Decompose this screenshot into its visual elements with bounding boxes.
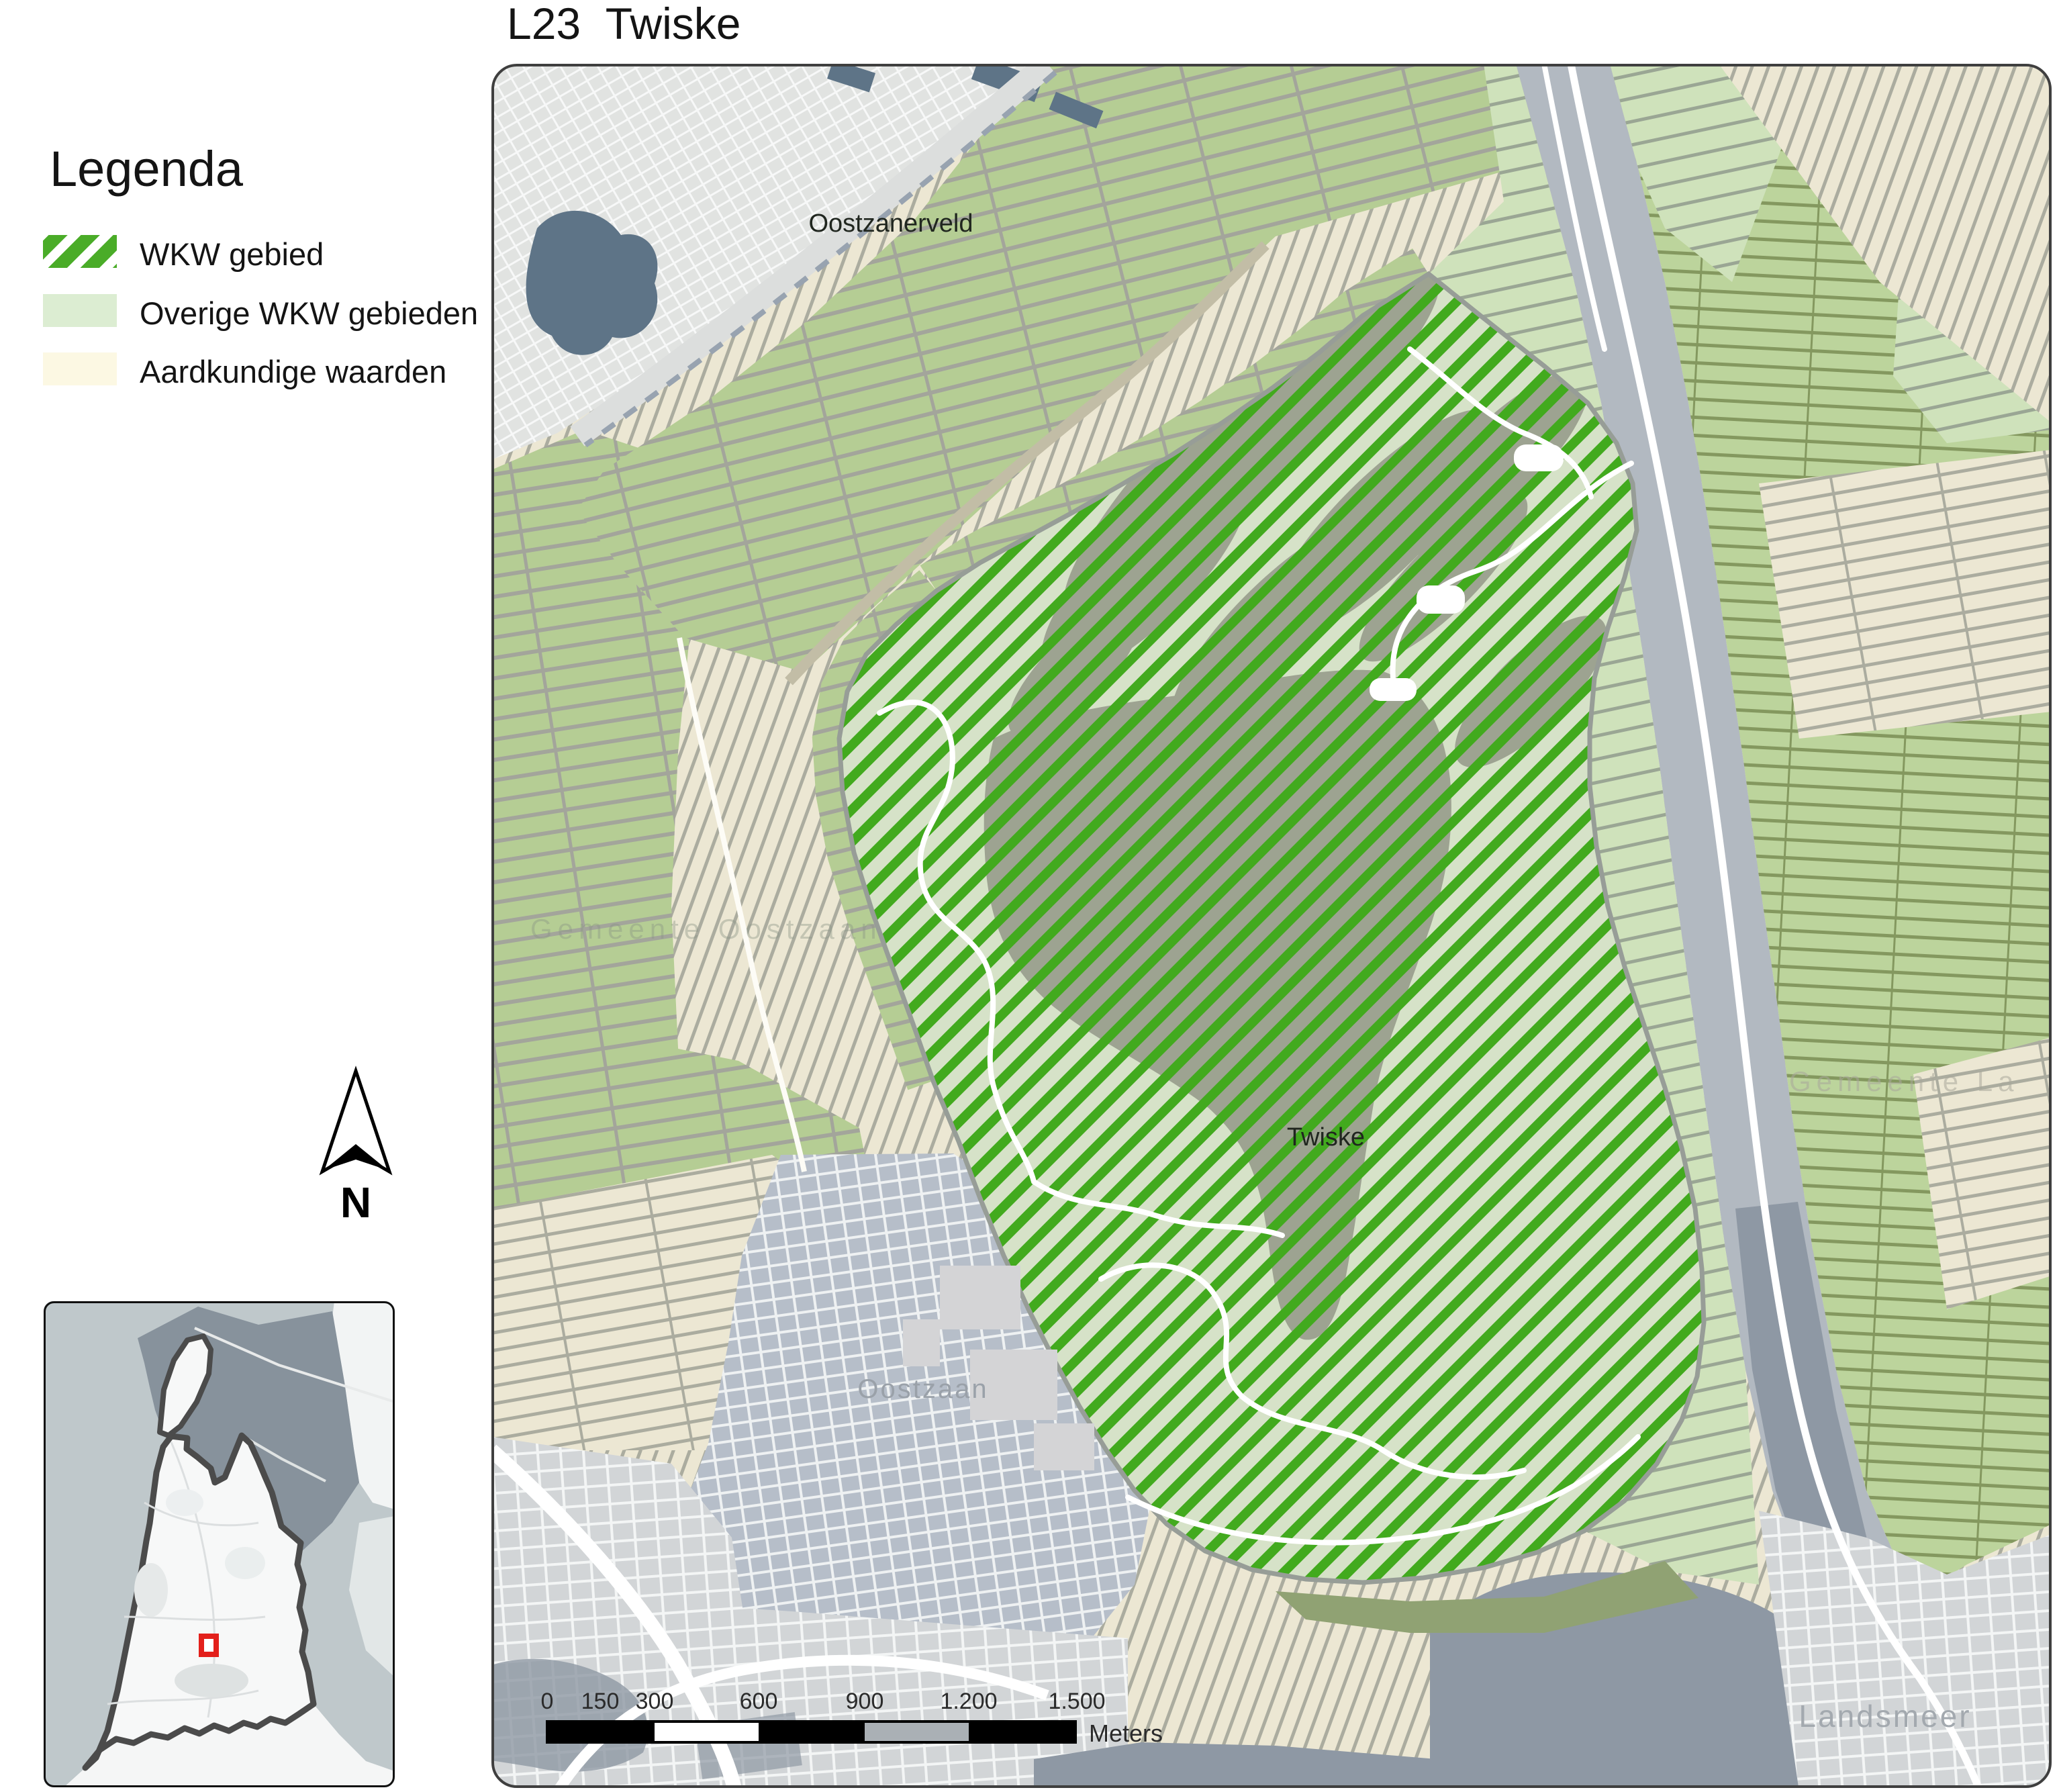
svg-text:Gemeente La: Gemeente La [1789,1066,2019,1097]
svg-text:Oostzanerveld: Oostzanerveld [808,209,973,238]
svg-text:900: 900 [846,1689,884,1714]
svg-text:300: 300 [636,1689,674,1714]
svg-text:Gemeente Oostzaan: Gemeente Oostzaan [530,913,882,945]
svg-text:Twiske: Twiske [1287,1123,1365,1151]
svg-text:0: 0 [541,1689,554,1714]
svg-text:150: 150 [581,1689,620,1714]
svg-text:Oostzaan: Oostzaan [857,1374,988,1404]
svg-text:Meters: Meters [1089,1719,1163,1747]
svg-text:1.200: 1.200 [940,1689,997,1714]
svg-text:N: N [340,1178,371,1222]
svg-text:Landsmeer: Landsmeer [1799,1699,1971,1734]
svg-text:1.500: 1.500 [1048,1689,1105,1714]
svg-text:600: 600 [740,1689,778,1714]
